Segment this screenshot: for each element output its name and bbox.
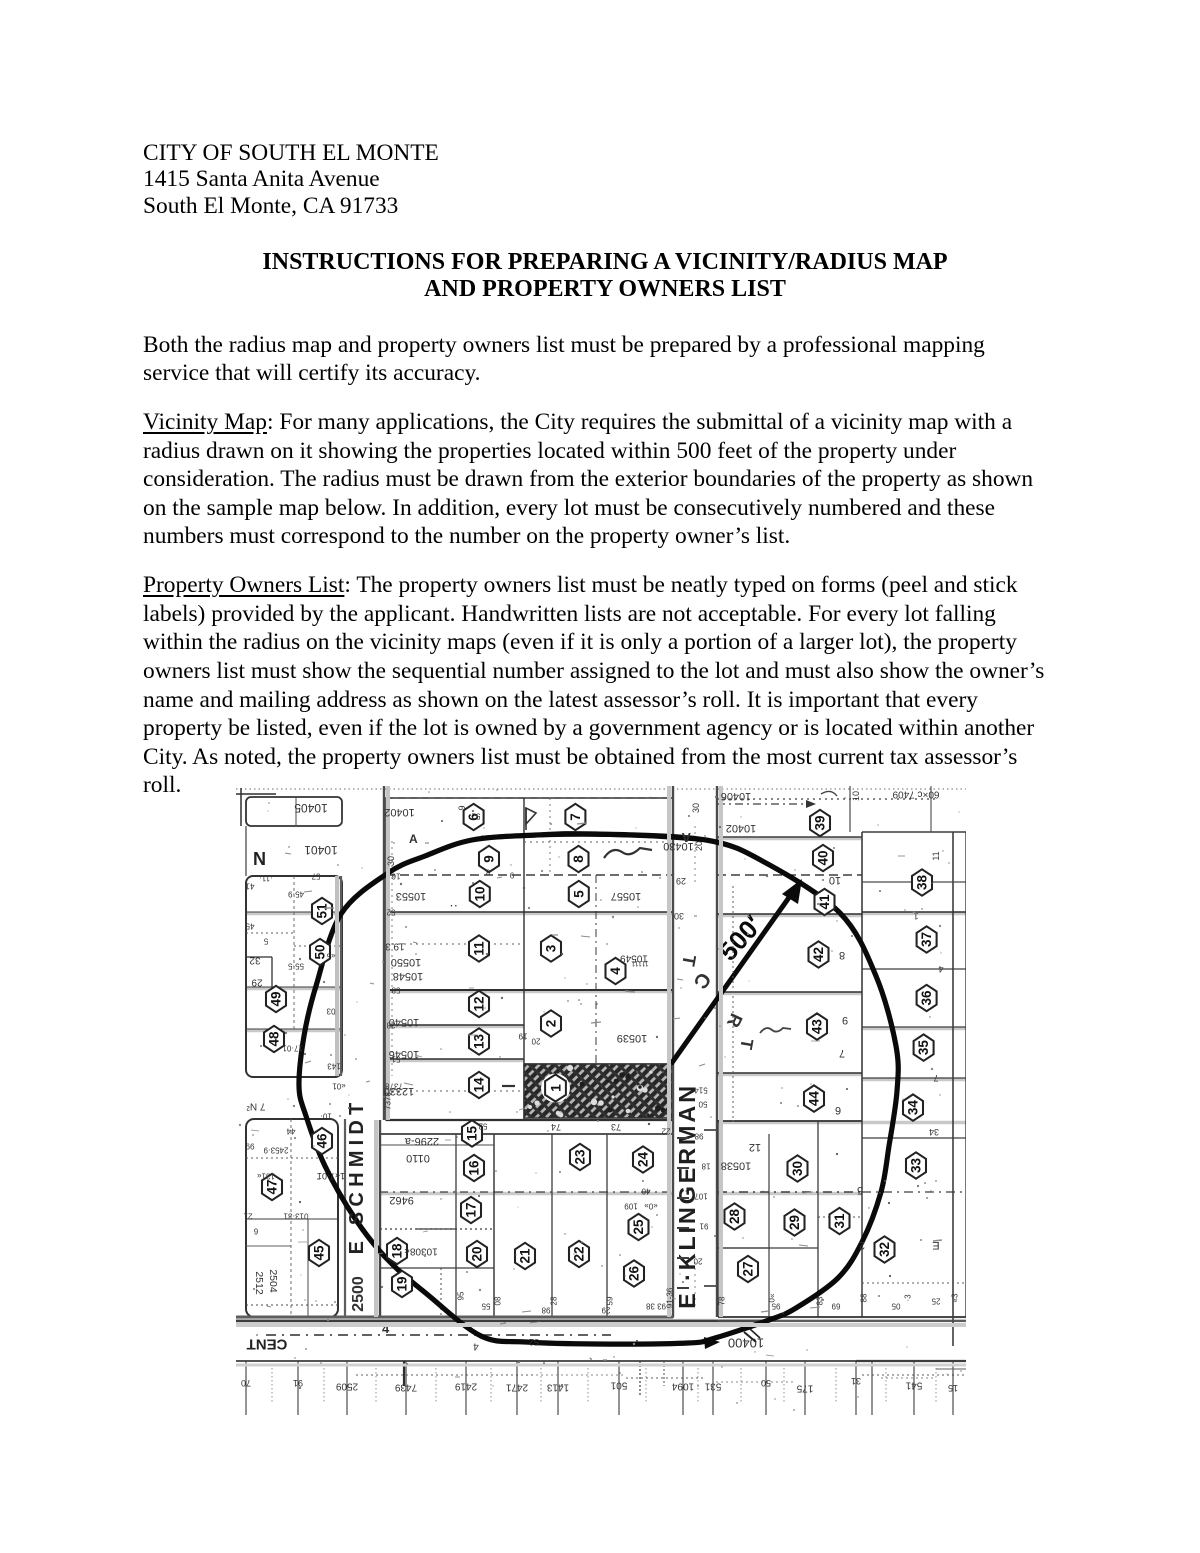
svg-text:91: 91 — [293, 1378, 303, 1388]
svg-text:41: 41 — [817, 894, 832, 910]
svg-text:99: 99 — [245, 1142, 254, 1151]
svg-text:2512: 2512 — [253, 1271, 265, 1295]
svg-text:N: N — [253, 848, 266, 868]
svg-text:2453·9: 2453·9 — [263, 1146, 288, 1155]
svg-text:0110: 0110 — [406, 1152, 430, 1164]
svg-text:18: 18 — [701, 1162, 710, 1171]
svg-text:11: 11 — [472, 941, 487, 956]
svg-text:11: 11 — [931, 851, 941, 860]
svg-text:2509: 2509 — [335, 1381, 358, 1392]
svg-text:29: 29 — [676, 876, 686, 886]
svg-text:10557: 10557 — [611, 890, 642, 902]
svg-text:52: 52 — [529, 1337, 539, 1347]
svg-text:08: 08 — [494, 1296, 503, 1305]
svg-text:0«: 0« — [768, 1293, 777, 1302]
svg-text:A: A — [409, 832, 418, 846]
svg-text:2296-a: 2296-a — [404, 1135, 439, 1147]
svg-text:8: 8 — [571, 855, 586, 863]
svg-text:14: 14 — [472, 1077, 487, 1093]
svg-text:88: 88 — [860, 1293, 869, 1302]
svg-text:57: 57 — [311, 872, 320, 881]
svg-text:4: 4 — [608, 967, 623, 975]
svg-text:17: 17 — [464, 1202, 479, 1217]
svg-text:30: 30 — [691, 803, 701, 813]
svg-text:95: 95 — [457, 1291, 466, 1300]
svg-text:10430: 10430 — [663, 840, 694, 852]
svg-text:10405: 10405 — [294, 801, 328, 815]
svg-text:7: 7 — [568, 813, 583, 821]
svg-text:E SCHMIDT: E SCHMIDT — [346, 1098, 368, 1255]
svg-text:3: 3 — [385, 941, 391, 952]
svg-text:31: 31 — [832, 1213, 847, 1229]
svg-text:5: 5 — [571, 890, 586, 898]
svg-text:30: 30 — [674, 911, 684, 921]
svg-text:19: 19 — [518, 1032, 527, 1041]
svg-text:1094: 1094 — [671, 1381, 694, 1392]
svg-text:16: 16 — [391, 872, 400, 881]
svg-text:73: 73 — [611, 1122, 621, 1132]
svg-text:10548: 10548 — [393, 970, 424, 982]
svg-text:541: 541 — [905, 1380, 922, 1391]
svg-text:31: 31 — [851, 1376, 861, 1386]
svg-text:45: 45 — [245, 922, 254, 931]
svg-text:131«: 131« — [257, 1172, 275, 1181]
svg-text:40: 40 — [816, 850, 831, 865]
svg-text:50: 50 — [698, 1100, 707, 1109]
svg-text:7378: 7378 — [384, 1092, 393, 1110]
svg-text:91: 91 — [699, 1222, 708, 1231]
svg-text:30: 30 — [386, 856, 396, 866]
svg-text:10538: 10538 — [721, 1160, 752, 1172]
svg-text:70: 70 — [241, 1378, 251, 1388]
svg-text:9: 9 — [842, 1014, 848, 1026]
svg-text:18: 18 — [390, 1243, 405, 1259]
svg-text:12: 12 — [749, 1141, 761, 1153]
svg-text:58: 58 — [391, 986, 400, 995]
svg-text:16: 16 — [467, 1160, 482, 1176]
svg-text:9: 9 — [457, 805, 467, 810]
svg-text:10401: 10401 — [304, 843, 338, 857]
svg-text:23: 23 — [573, 1149, 588, 1165]
svg-text:44: 44 — [286, 1127, 295, 1136]
svg-text:531: 531 — [704, 1381, 721, 1392]
svg-text:·11·: ·11· — [259, 874, 273, 883]
svg-text:50: 50 — [313, 944, 328, 959]
svg-text:20: 20 — [694, 841, 704, 851]
svg-text:«01: «01 — [332, 1082, 346, 1091]
svg-text:39: 39 — [813, 815, 828, 830]
svg-text:7 N²: 7 N² — [246, 1101, 266, 1112]
svg-text:12: 12 — [472, 996, 487, 1011]
svg-text:10402: 10402 — [726, 822, 757, 834]
svg-text:59: 59 — [606, 1296, 615, 1305]
svg-text:46: 46 — [315, 1133, 330, 1149]
svg-text:10308«: 10308« — [404, 1246, 438, 1257]
svg-text:40: 40 — [641, 1187, 650, 1196]
svg-text:6: 6 — [253, 1227, 258, 1236]
svg-text:25: 25 — [931, 1297, 940, 1306]
svg-text:20: 20 — [470, 1246, 485, 1261]
svg-text:51: 51 — [391, 1055, 400, 1064]
svg-text:38: 38 — [386, 1021, 395, 1030]
svg-text:2419: 2419 — [454, 1381, 477, 1392]
svg-text:3: 3 — [544, 944, 559, 952]
svg-text:21: 21 — [243, 1212, 252, 1221]
svg-text:45·9: 45·9 — [287, 890, 304, 899]
svg-text:25: 25 — [631, 1219, 646, 1235]
svg-text:109: 109 — [624, 1202, 638, 1211]
svg-text:29: 29 — [601, 1306, 610, 1315]
svg-text:10539: 10539 — [617, 1032, 648, 1044]
svg-text:2500: 2500 — [350, 1276, 367, 1312]
svg-text:10553: 10553 — [396, 890, 427, 902]
svg-text:10406: 10406 — [721, 790, 752, 802]
svg-text:51: 51 — [315, 903, 330, 919]
svg-text:49: 49 — [269, 991, 284, 1006]
svg-text:24: 24 — [636, 1152, 651, 1168]
svg-text:35: 35 — [916, 1040, 931, 1056]
svg-text:·3: ·3 — [904, 1294, 913, 1302]
svg-text:11111: 11111 — [631, 960, 648, 967]
svg-text:33: 33 — [909, 1158, 924, 1174]
svg-text:4: 4 — [473, 1341, 479, 1352]
svg-text:98: 98 — [694, 1132, 703, 1141]
svg-text:5: 5 — [263, 937, 268, 946]
svg-text:9: 9 — [509, 871, 514, 880]
svg-text:74: 74 — [551, 1122, 561, 1132]
svg-text:9462: 9462 — [389, 1194, 413, 1206]
svg-text:34: 34 — [906, 1100, 921, 1116]
svg-text:55: 55 — [481, 1302, 490, 1311]
svg-text:«5: «5 — [326, 952, 335, 961]
svg-text:29: 29 — [251, 977, 263, 988]
svg-text:175: 175 — [796, 1383, 813, 1394]
svg-text:20: 20 — [531, 1037, 540, 1046]
svg-text:2: 2 — [544, 1020, 559, 1028]
svg-text:21: 21 — [518, 1248, 533, 1264]
svg-text:10: 10 — [472, 886, 487, 901]
svg-text:36: 36 — [919, 990, 934, 1006]
svg-text:2: 2 — [859, 1239, 865, 1251]
svg-text:60×c 7409: 60×c 7409 — [892, 789, 939, 800]
svg-text:05: 05 — [891, 1302, 900, 1311]
svg-text:03: 03 — [326, 1007, 335, 1016]
svg-text:107: 107 — [694, 1192, 708, 1201]
svg-text:1413: 1413 — [546, 1382, 569, 1393]
svg-text:27: 27 — [741, 1261, 756, 1276]
svg-text:32: 32 — [249, 955, 261, 966]
svg-text:5: 5 — [857, 1184, 863, 1196]
svg-text:1«7·01: 1«7·01 — [317, 1171, 345, 1181]
svg-text:501: 501 — [610, 1380, 627, 1391]
svg-text:10402: 10402 — [384, 806, 415, 818]
svg-text:30: 30 — [790, 1161, 805, 1176]
svg-text:26: 26 — [627, 1266, 642, 1282]
svg-text:44: 44 — [807, 1091, 822, 1107]
svg-text:··: ·· — [449, 899, 458, 914]
svg-text:514: 514 — [694, 1086, 708, 1095]
svg-text:52: 52 — [386, 908, 395, 917]
svg-text:19: 19 — [393, 941, 405, 952]
svg-text:1: 1 — [548, 1084, 564, 1092]
svg-text:7: 7 — [933, 1073, 938, 1083]
svg-text:7: 7 — [839, 1047, 845, 1059]
svg-text:93 38: 93 38 — [645, 1302, 666, 1311]
svg-text:15: 15 — [465, 1126, 480, 1142]
svg-text:29: 29 — [787, 1215, 802, 1230]
svg-text:10: 10 — [829, 874, 841, 886]
svg-text:013·31: 013·31 — [283, 1212, 308, 1221]
svg-text:22: 22 — [661, 1127, 670, 1136]
svg-text:10: 10 — [851, 791, 861, 801]
svg-text:7378: 7378 — [385, 1082, 403, 1091]
svg-text:10·: 10· — [320, 1112, 332, 1121]
svg-text:15: 15 — [948, 1383, 958, 1393]
svg-text:50: 50 — [761, 1378, 771, 1388]
svg-text:2504: 2504 — [267, 1269, 279, 1293]
svg-text:20: 20 — [693, 1257, 702, 1266]
svg-text:8: 8 — [485, 868, 490, 877]
svg-text:98: 98 — [541, 1306, 550, 1315]
svg-text:47: 47 — [265, 1179, 280, 1194]
svg-text:28: 28 — [727, 1209, 742, 1225]
svg-text:55·5: 55·5 — [287, 962, 304, 971]
svg-text:2471: 2471 — [505, 1382, 528, 1393]
svg-text:·17·01: ·17·01 — [282, 1044, 306, 1053]
svg-text:78: 78 — [718, 1296, 727, 1305]
svg-text:52: 52 — [478, 1122, 487, 1131]
svg-text:«0»: «0» — [644, 1202, 658, 1211]
svg-text:7439: 7439 — [394, 1382, 417, 1393]
svg-text:«3: «3 — [951, 1293, 960, 1302]
svg-text:13: 13 — [472, 1034, 487, 1050]
svg-text:48: 48 — [267, 1031, 282, 1047]
svg-text:28: 28 — [550, 1296, 559, 1305]
svg-text:32: 32 — [877, 1242, 892, 1257]
svg-text:34: 34 — [929, 1127, 939, 1137]
svg-text:19: 19 — [395, 1276, 410, 1291]
svg-text:8: 8 — [839, 949, 845, 961]
svg-text:52: 52 — [471, 812, 480, 821]
svg-text:143: 143 — [327, 1062, 341, 1071]
svg-text:45: 45 — [312, 1245, 327, 1261]
svg-text:9: 9 — [482, 855, 497, 863]
svg-text:42: 42 — [811, 947, 826, 962]
svg-text:69: 69 — [831, 1302, 840, 1311]
svg-text:10550: 10550 — [391, 956, 422, 968]
svg-text:4: 4 — [938, 964, 943, 974]
svg-text:43: 43 — [810, 1019, 825, 1035]
svg-text:CENT: CENT — [247, 1336, 288, 1353]
svg-text:91-36: 91-36 — [666, 1287, 675, 1308]
svg-text:6: 6 — [835, 1104, 841, 1116]
svg-text:37: 37 — [919, 932, 934, 947]
svg-text:38: 38 — [915, 875, 930, 891]
svg-text:41: 41 — [245, 882, 254, 891]
